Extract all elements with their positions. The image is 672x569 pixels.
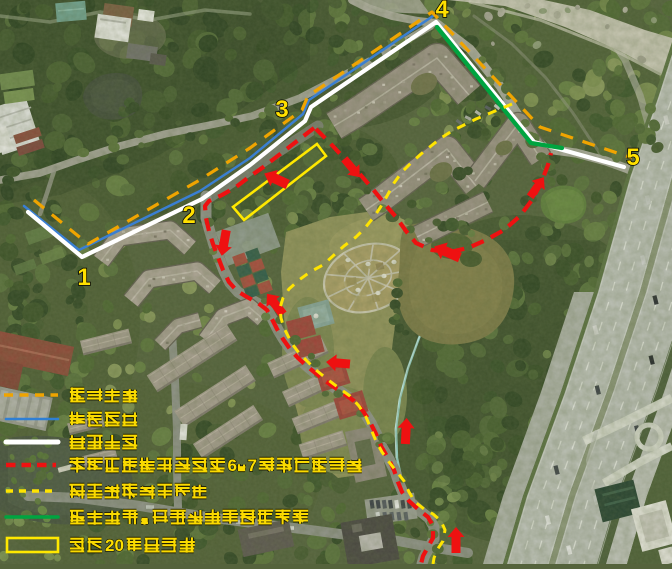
svg-text:2: 2 bbox=[182, 202, 195, 229]
svg-text:7: 7 bbox=[248, 456, 257, 475]
svg-text:3: 3 bbox=[275, 96, 288, 123]
svg-text:20: 20 bbox=[105, 536, 124, 555]
svg-text:4: 4 bbox=[435, 0, 449, 23]
svg-text:1: 1 bbox=[77, 264, 90, 291]
svg-text:5: 5 bbox=[626, 144, 639, 171]
svg-text:6: 6 bbox=[228, 456, 237, 475]
